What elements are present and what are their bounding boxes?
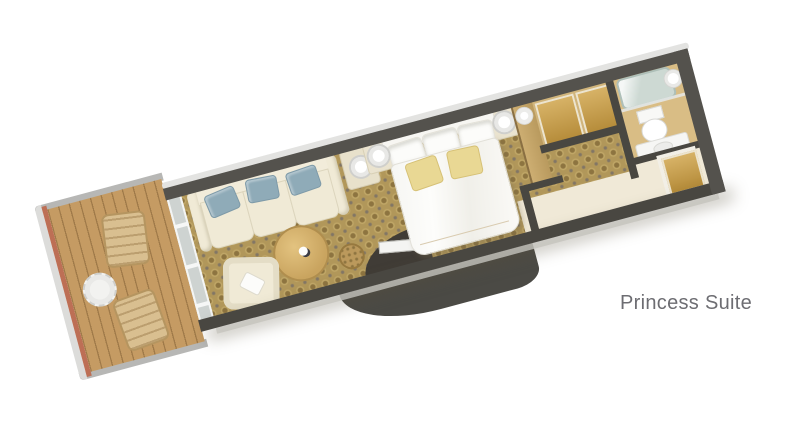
partition-mullion [195,301,211,309]
balcony-lounger-1 [101,210,151,269]
partition-mullion [174,221,190,229]
suite-name-label: Princess Suite [620,292,752,315]
page: { "title": { "label": "Princess Suite" }… [0,0,800,422]
suite-floorplan [40,40,730,373]
armchair-pillow [239,271,266,296]
coffee-table-decor [298,246,309,257]
partition-mullion [185,262,201,270]
